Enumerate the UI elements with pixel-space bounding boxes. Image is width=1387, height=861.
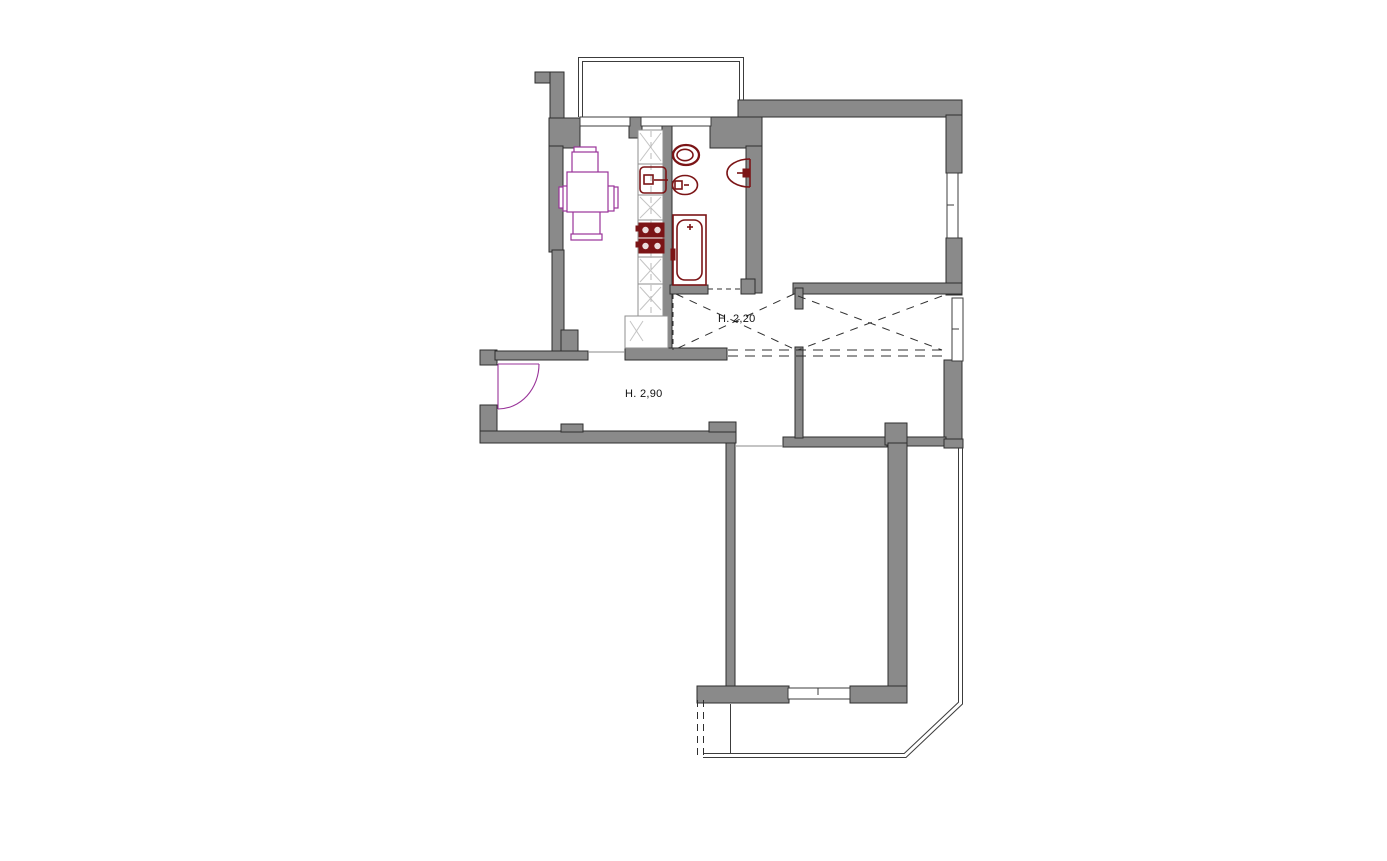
bathtub-handle bbox=[671, 249, 675, 260]
wall bbox=[670, 285, 708, 294]
wall bbox=[795, 347, 803, 438]
floor-plan-page: SC FO H. 2,20 H. 2,90 bbox=[0, 0, 1387, 861]
wall bbox=[946, 115, 962, 173]
wall bbox=[480, 350, 497, 365]
washbasin-tap bbox=[743, 169, 749, 177]
wall bbox=[888, 443, 907, 701]
wall bbox=[793, 283, 962, 294]
wall bbox=[709, 422, 736, 432]
wall bbox=[885, 423, 907, 445]
chair bbox=[573, 211, 600, 236]
stove-burner bbox=[654, 227, 660, 233]
wall bbox=[907, 437, 946, 446]
floor-plan-canvas: SC FO H. 2,20 H. 2,90 bbox=[0, 0, 1387, 861]
bidet-tap bbox=[675, 181, 682, 189]
wall bbox=[726, 443, 735, 689]
wall bbox=[746, 146, 762, 293]
wall bbox=[550, 72, 564, 121]
toilet-bowl bbox=[677, 149, 693, 160]
balcony-outline bbox=[583, 62, 740, 118]
terrace-outline bbox=[703, 448, 963, 758]
wall bbox=[561, 330, 578, 354]
chair bbox=[572, 152, 598, 173]
window bbox=[580, 117, 630, 126]
wall bbox=[710, 117, 762, 148]
stove-knob bbox=[636, 242, 639, 247]
bathroom-fixtures bbox=[671, 145, 750, 285]
ceiling-height-label-corridor: H. 2,20 bbox=[718, 313, 756, 325]
wall bbox=[944, 360, 962, 445]
stove-burner bbox=[642, 227, 648, 233]
wall bbox=[850, 686, 907, 703]
lowered-ceiling-cross bbox=[798, 296, 942, 350]
wall bbox=[944, 439, 963, 448]
terrace-outline bbox=[703, 448, 959, 754]
balcony-outline bbox=[579, 58, 744, 118]
wall bbox=[795, 288, 803, 309]
dining-table bbox=[567, 172, 608, 212]
stove-knob bbox=[636, 226, 639, 231]
wall bbox=[625, 348, 727, 360]
stove-label: SC FO bbox=[641, 250, 656, 255]
entrance-door bbox=[498, 364, 539, 409]
wall bbox=[495, 351, 588, 360]
dining-furniture bbox=[559, 147, 618, 240]
window bbox=[788, 688, 850, 699]
chair-back bbox=[571, 234, 602, 240]
wall bbox=[697, 686, 789, 703]
window bbox=[641, 117, 711, 126]
lowered-ceiling-marks bbox=[673, 289, 943, 356]
fridge bbox=[625, 316, 668, 348]
ceiling-height-label-hall: H. 2,90 bbox=[625, 388, 663, 400]
wall bbox=[549, 118, 580, 148]
wall bbox=[561, 424, 583, 432]
wall bbox=[480, 431, 736, 443]
stove-burner bbox=[654, 243, 660, 249]
walls bbox=[480, 72, 963, 703]
wall bbox=[741, 279, 755, 294]
wall bbox=[738, 100, 962, 117]
stove-burner bbox=[642, 243, 648, 249]
entrance-door-swing bbox=[498, 364, 539, 409]
